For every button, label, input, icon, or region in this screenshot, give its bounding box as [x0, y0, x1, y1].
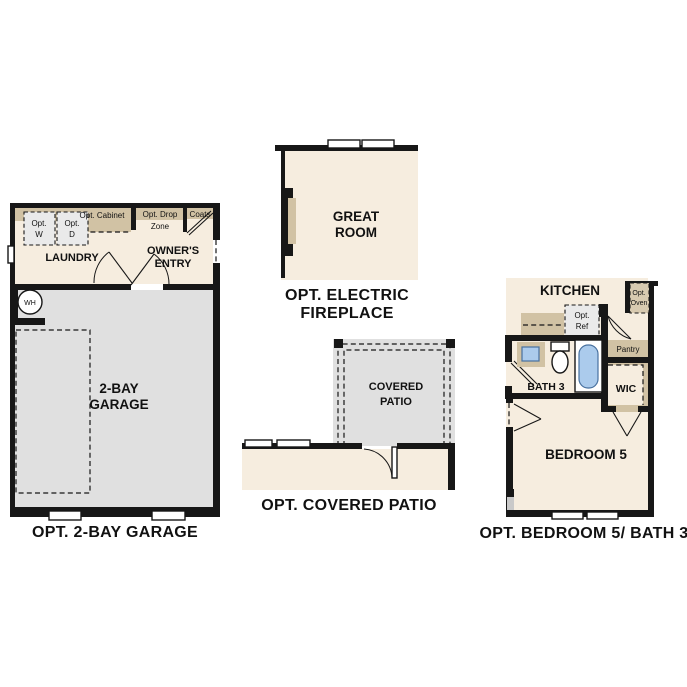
washer-box [24, 212, 55, 245]
wall-wic-door-stub [608, 406, 616, 412]
opt-oven-box [630, 283, 649, 313]
wall-right-upper [213, 203, 220, 240]
wall-garage-divider-right [163, 284, 213, 290]
fireplace-caption-1: OPT. ELECTRIC [285, 287, 409, 304]
bath-label: BATH 3 [527, 381, 564, 393]
patio-caption: OPT. COVERED PATIO [261, 497, 437, 514]
interior-floor [242, 449, 448, 490]
opt-dryer-label-1: Opt. [64, 219, 79, 228]
rear-window-1 [245, 440, 272, 447]
wall-coats-stub [183, 208, 187, 232]
toilet-bowl [552, 351, 568, 373]
garage-label-2: GARAGE [89, 397, 148, 412]
water-heater-label: WH [24, 300, 36, 307]
floorplan-canvas: Opt. W Opt. D Opt. Cabinet Opt. Drop Zon… [0, 0, 687, 687]
bedroom-window-2 [587, 512, 618, 519]
opt-ref-label-1: Opt. [574, 311, 589, 320]
wall-bedroom-left-upper [506, 393, 513, 403]
wall-cut-mark [507, 497, 514, 512]
fireplace-caption-2: FIREPLACE [300, 305, 393, 322]
wall-cut-stub [506, 489, 514, 497]
bathtub-basin [579, 345, 598, 388]
owners-entry-label-2: ENTRY [155, 258, 193, 270]
wall-oven-stub [625, 281, 630, 313]
opt-dryer-label-2: D [69, 230, 75, 239]
wall-right-stub [448, 443, 455, 490]
toilet-tank [551, 342, 569, 351]
fireplace-insert [288, 198, 296, 244]
opt-oven-label-2: Oven [631, 300, 648, 307]
bath-sink [522, 347, 539, 361]
wall-left [281, 151, 285, 278]
wall-right [648, 282, 654, 517]
wall-rear-right [397, 443, 455, 449]
opt-oven-label-1: Opt. [632, 290, 645, 297]
rear-window-2 [277, 440, 310, 447]
fireplace-plan: GREAT ROOM OPT. ELECTRIC FIREPLACE [275, 140, 418, 322]
covered-patio-label-1: COVERED [369, 381, 423, 393]
opt-washer-label-2: W [35, 230, 43, 239]
wic-label: WIC [616, 383, 637, 395]
patio-plan: COVERED PATIO OPT. COVERED PATIO [242, 339, 455, 514]
great-room-window-1 [328, 140, 360, 148]
great-room-label-2: ROOM [335, 225, 377, 240]
wall-pantry-wic-divider [601, 357, 648, 363]
wall-top [10, 203, 220, 208]
wall-bottom [10, 507, 220, 517]
wall-right-lower [213, 263, 220, 517]
laundry-label: LAUNDRY [45, 252, 99, 264]
opt-washer-label-1: Opt. [31, 219, 46, 228]
bedroom-caption: OPT. BEDROOM 5/ BATH 3 [480, 525, 687, 542]
owners-entry-label-1: OWNER'S [147, 245, 199, 257]
garage-door-marker-2 [152, 511, 185, 520]
garage-door-marker-1 [49, 511, 81, 520]
wall-bath-left-upper [505, 335, 512, 362]
opt-ref-label-2: Ref [576, 322, 589, 331]
wall-wh-stub [15, 318, 45, 325]
bedroom-window-1 [552, 512, 583, 519]
opt-drop-zone-label-1: Opt. Drop [143, 210, 178, 219]
wall-laundry-entry-stub [131, 208, 136, 230]
pantry-label: Pantry [616, 345, 639, 354]
garage-label-1: 2-BAY [99, 381, 138, 396]
floorplan-svg: Opt. W Opt. D Opt. Cabinet Opt. Drop Zon… [0, 0, 687, 687]
kitchen-label: KITCHEN [540, 283, 600, 298]
covered-patio-label-2: PATIO [380, 396, 412, 408]
garage-caption: OPT. 2-BAY GARAGE [32, 524, 198, 541]
opt-drop-zone-label-2: Zone [151, 222, 170, 231]
coats-label: Coats [190, 210, 211, 219]
patio-door-leaf [392, 447, 397, 478]
garage-plan: Opt. W Opt. D Opt. Cabinet Opt. Drop Zon… [8, 203, 220, 541]
great-room-label-1: GREAT [333, 209, 380, 224]
wall-bedroom-top-left [505, 393, 608, 399]
wall-garage-divider-left [15, 284, 131, 290]
laundry-window [8, 246, 14, 263]
wall-bedroom-top-right [638, 406, 654, 412]
bedroom-label: BEDROOM 5 [545, 447, 627, 462]
opt-cabinet-label: Opt. Cabinet [80, 211, 126, 220]
bedroom-plan: KITCHEN Opt. Ref Opt. Oven Pantry BATH 3… [480, 278, 687, 542]
great-room-window-2 [362, 140, 394, 148]
